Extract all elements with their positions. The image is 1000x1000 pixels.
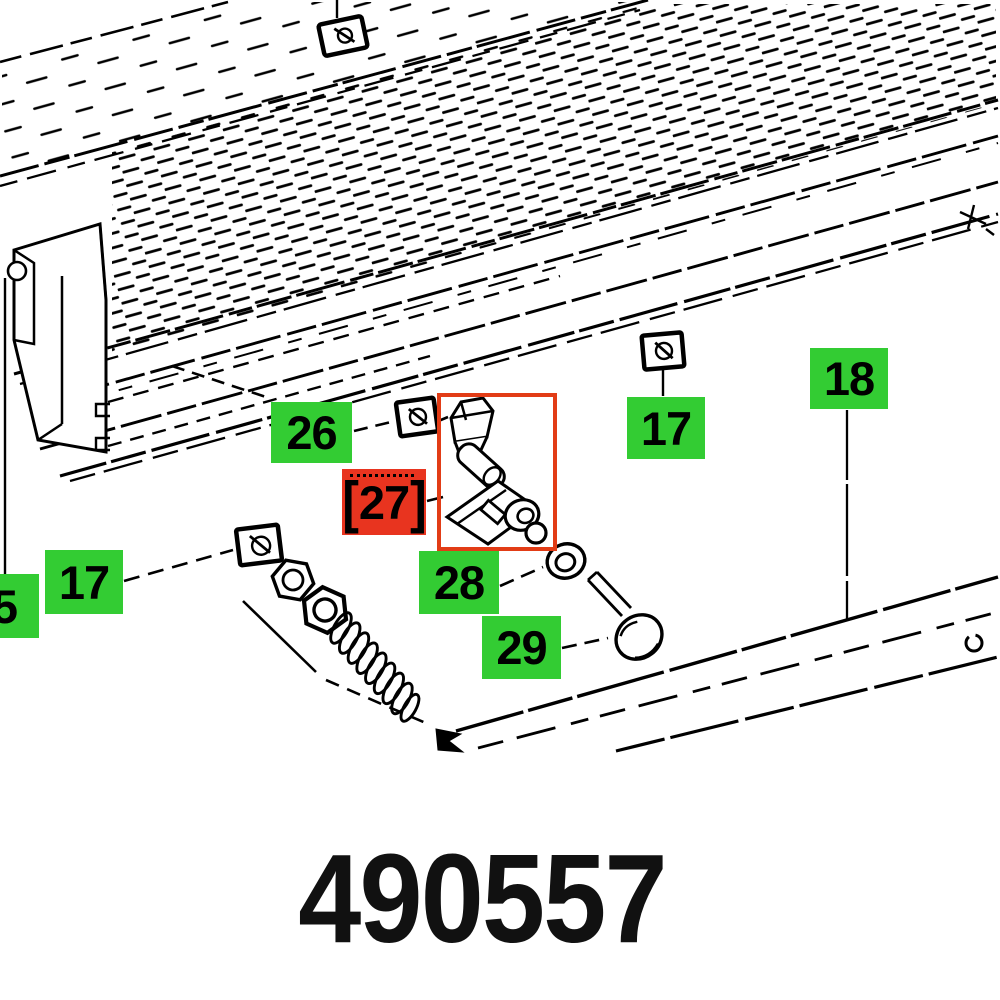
part-label-5[interactable]: 5 [0,574,39,638]
rail-end-cap [8,224,110,452]
part-label-17-left[interactable]: 17 [45,550,123,614]
part-label-17-right[interactable]: 17 [627,397,705,459]
part-label-27-selected[interactable]: [ 27 ] [342,469,426,535]
square-nut-icon [236,525,282,566]
square-nut-icon [642,332,685,369]
square-nut-icon [396,398,438,437]
part-label-18[interactable]: 18 [810,348,888,409]
spring-icon [315,607,435,727]
selection-dotted-line [350,474,414,477]
part-label-29[interactable]: 29 [482,616,561,679]
part-number-title: 490557 [32,826,932,971]
part-label-text: 18 [824,355,874,402]
square-nut-icon [318,16,368,56]
part-label-28[interactable]: 28 [419,551,499,614]
part-label-text: 17 [641,405,691,452]
bracket-left: [ [341,473,359,531]
part-label-text: 27 [359,479,409,526]
part-label-text: 29 [496,624,546,671]
part-label-text: 5 [0,583,17,630]
part-highlight-box [437,393,557,551]
bracket-right: ] [409,473,427,531]
part-label-text: 26 [286,409,336,456]
part-label-26[interactable]: 26 [271,402,352,463]
part-label-text: 28 [434,559,484,606]
knob-bolt-icon [588,572,671,668]
part-label-text: 17 [59,559,109,606]
